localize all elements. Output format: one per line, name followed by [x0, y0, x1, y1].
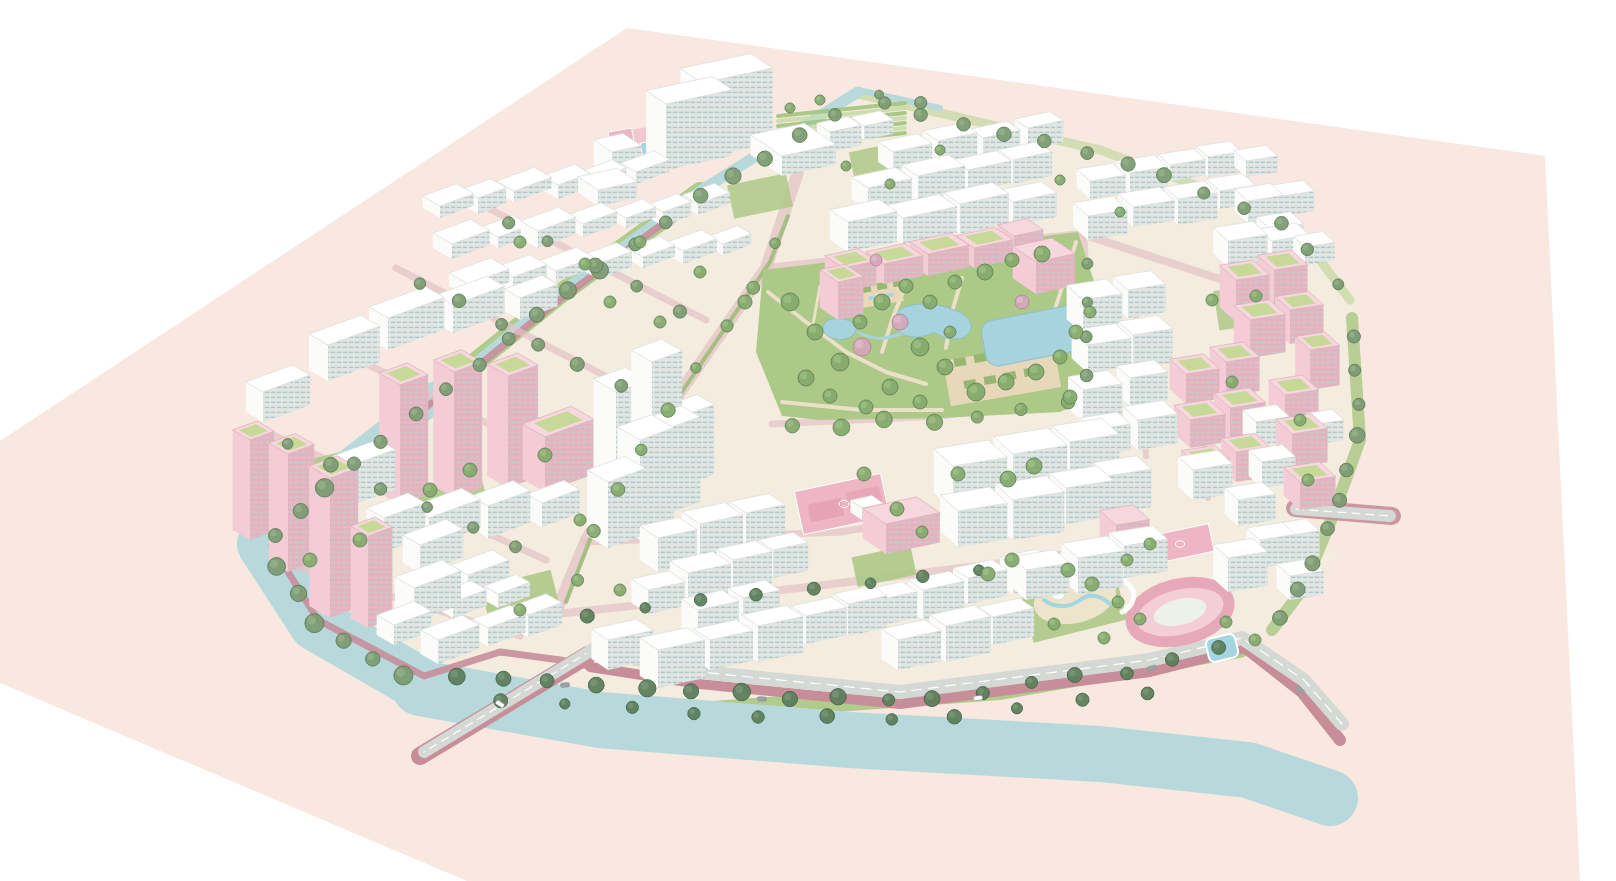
- tree: [876, 411, 893, 428]
- building-white: [1011, 550, 1069, 600]
- tree: [998, 374, 1014, 390]
- tree: [981, 567, 995, 581]
- tree: [853, 338, 871, 356]
- tree: [631, 280, 643, 292]
- tree: [971, 411, 983, 423]
- tree: [290, 585, 306, 601]
- tree: [997, 127, 1011, 141]
- tree: [542, 236, 553, 247]
- tree: [977, 264, 993, 280]
- tree: [503, 217, 515, 229]
- tree: [1206, 294, 1218, 306]
- tree: [1067, 668, 1082, 683]
- tree: [1081, 147, 1094, 160]
- tree: [374, 483, 386, 495]
- tree: [1249, 634, 1261, 646]
- tree: [792, 128, 807, 143]
- tree: [1038, 134, 1052, 148]
- tree: [414, 278, 426, 290]
- tree: [1302, 474, 1314, 486]
- tree: [807, 582, 820, 595]
- tree: [559, 282, 576, 299]
- tree: [293, 503, 308, 518]
- tree: [815, 95, 825, 105]
- tree: [781, 293, 799, 311]
- tree: [913, 395, 927, 409]
- tree: [673, 305, 686, 318]
- tree: [502, 332, 515, 345]
- tree: [640, 603, 650, 613]
- tree: [917, 570, 929, 582]
- tree: [1121, 554, 1133, 566]
- tree: [725, 168, 741, 184]
- tree: [1273, 611, 1288, 626]
- tree: [560, 699, 570, 709]
- tree: [1212, 641, 1226, 655]
- tree: [473, 358, 486, 371]
- tree: [691, 363, 701, 373]
- tree: [688, 708, 700, 720]
- tree: [865, 578, 876, 589]
- tree: [1005, 553, 1019, 567]
- tree: [694, 266, 706, 278]
- tree: [654, 316, 666, 328]
- tree: [916, 526, 928, 538]
- tree: [1025, 676, 1037, 688]
- tree: [859, 400, 873, 414]
- tree: [841, 161, 851, 171]
- tree: [823, 389, 837, 403]
- tree: [1098, 632, 1110, 644]
- tree: [635, 444, 647, 456]
- tree: [634, 236, 646, 248]
- tree: [770, 238, 780, 248]
- building-white: [881, 620, 941, 670]
- tree: [747, 281, 760, 294]
- tree: [661, 403, 675, 417]
- tree: [957, 118, 970, 131]
- tree: [1076, 693, 1089, 706]
- tree: [1028, 364, 1044, 380]
- tree: [1015, 403, 1027, 415]
- tree: [1061, 563, 1075, 577]
- building-pink: [820, 264, 864, 320]
- tree: [532, 338, 545, 351]
- tree: [1144, 538, 1156, 550]
- tree: [268, 558, 286, 576]
- tree: [324, 457, 339, 472]
- tree: [820, 709, 835, 724]
- tree: [733, 683, 750, 700]
- tree: [829, 109, 842, 122]
- tree: [890, 502, 904, 516]
- tree: [833, 419, 850, 436]
- tree: [604, 296, 616, 308]
- tree: [639, 680, 656, 697]
- tree: [303, 553, 317, 567]
- tree: [463, 463, 477, 477]
- tree: [659, 216, 672, 229]
- tree: [830, 689, 846, 705]
- tree: [937, 359, 953, 375]
- tree: [798, 370, 814, 386]
- tree: [1000, 471, 1016, 487]
- tree: [1048, 618, 1060, 630]
- render-canvas: [0, 0, 1616, 881]
- tree: [1055, 175, 1065, 185]
- tree: [394, 666, 413, 685]
- tree: [496, 671, 511, 686]
- tree: [374, 435, 387, 448]
- tree: [1005, 253, 1019, 267]
- tree: [807, 324, 823, 340]
- tree: [448, 668, 465, 685]
- tree: [1333, 279, 1344, 290]
- car: [757, 697, 766, 702]
- tree: [529, 307, 544, 322]
- building-white: [1073, 196, 1127, 240]
- tree: [574, 514, 586, 526]
- tree: [268, 529, 282, 543]
- tree: [422, 502, 433, 513]
- tree: [1290, 582, 1305, 597]
- tree: [757, 151, 772, 166]
- tree: [1301, 243, 1313, 255]
- tree: [282, 438, 293, 449]
- tree: [1220, 616, 1232, 628]
- tree: [423, 483, 437, 497]
- tree: [967, 383, 985, 401]
- building-white: [1117, 360, 1168, 406]
- tree: [1134, 613, 1146, 625]
- building-white: [940, 487, 1007, 547]
- tree: [831, 353, 849, 371]
- tree: [1141, 687, 1154, 700]
- tree: [926, 414, 942, 430]
- tree: [305, 614, 324, 633]
- tree: [1333, 493, 1347, 507]
- tree: [914, 108, 927, 121]
- tree: [468, 522, 479, 533]
- tree: [614, 584, 626, 596]
- tree: [951, 467, 965, 481]
- tree: [782, 691, 797, 706]
- tree: [353, 533, 367, 547]
- masterplan-render: Axonometric urban masterplan render: riv…: [0, 0, 1616, 881]
- building-white: [1225, 482, 1276, 526]
- tree: [874, 294, 890, 310]
- tree: [1015, 295, 1029, 309]
- tree: [721, 320, 733, 332]
- tree: [580, 609, 594, 623]
- tree: [1011, 703, 1022, 714]
- tree: [1305, 556, 1320, 571]
- tree: [1340, 463, 1354, 477]
- tree: [1034, 246, 1050, 262]
- tree: [1157, 168, 1172, 183]
- building-white: [1178, 450, 1232, 500]
- tree: [579, 258, 591, 270]
- building-white: [640, 628, 705, 688]
- tree: [1347, 330, 1360, 343]
- tree: [911, 338, 929, 356]
- tree: [1294, 414, 1306, 426]
- tree: [572, 574, 584, 586]
- tree: [693, 188, 708, 203]
- tree: [336, 633, 351, 648]
- tree: [1165, 653, 1178, 666]
- building-pink: [233, 421, 275, 540]
- tree: [514, 604, 526, 616]
- tree: [1250, 290, 1262, 302]
- tree: [785, 419, 799, 433]
- tree: [1026, 458, 1042, 474]
- tree: [915, 97, 927, 109]
- tree: [1353, 398, 1365, 410]
- tree: [615, 379, 628, 392]
- tree: [366, 652, 380, 666]
- tree: [1112, 596, 1124, 608]
- tree: [440, 383, 453, 396]
- tree: [1121, 157, 1135, 171]
- building-white: [1123, 400, 1177, 450]
- tree: [875, 90, 884, 99]
- tree: [1321, 522, 1335, 536]
- tree: [510, 541, 522, 553]
- building-pink: [433, 350, 482, 498]
- tree: [870, 254, 882, 266]
- tree: [683, 684, 698, 699]
- tree: [540, 674, 554, 688]
- tree: [886, 714, 897, 725]
- tree: [785, 103, 795, 113]
- building-pink: [269, 433, 314, 572]
- tree: [750, 588, 763, 601]
- tree: [882, 379, 898, 395]
- tree: [944, 326, 956, 338]
- building-white: [1213, 538, 1267, 592]
- tree: [1085, 577, 1099, 591]
- tree: [948, 275, 962, 289]
- tree: [1080, 369, 1093, 382]
- tree: [1349, 364, 1361, 376]
- masterplan-svg: [0, 0, 1616, 881]
- tree: [694, 594, 707, 607]
- tree: [626, 701, 638, 713]
- tree: [923, 295, 937, 309]
- tree: [409, 407, 423, 421]
- tree: [452, 294, 466, 308]
- tree: [883, 694, 895, 706]
- car: [560, 682, 569, 687]
- tree: [1238, 202, 1251, 215]
- tree: [315, 479, 333, 497]
- tree: [1121, 667, 1134, 680]
- tree: [935, 145, 945, 155]
- masterplan-page: Axonometric urban masterplan render: riv…: [0, 0, 1616, 881]
- tree: [1082, 258, 1093, 269]
- tree: [570, 357, 584, 371]
- tree: [588, 677, 604, 693]
- tree: [853, 315, 867, 329]
- tree: [1115, 207, 1125, 217]
- tree: [347, 457, 360, 470]
- tree: [611, 483, 625, 497]
- tree: [1063, 390, 1077, 404]
- tree: [892, 314, 908, 330]
- tree: [899, 279, 913, 293]
- tree: [857, 467, 871, 481]
- tree: [1053, 350, 1067, 364]
- tree: [885, 179, 895, 189]
- tree: [1226, 376, 1238, 388]
- tree: [496, 318, 508, 330]
- tree: [1084, 306, 1096, 318]
- tree: [538, 448, 552, 462]
- car: [973, 695, 982, 700]
- tree: [947, 710, 961, 724]
- tree: [738, 295, 752, 309]
- tree: [587, 524, 600, 537]
- tree: [1349, 428, 1365, 444]
- tree: [752, 711, 764, 723]
- tree: [1275, 216, 1289, 230]
- tree: [924, 691, 940, 707]
- park-pond-small: [823, 319, 856, 340]
- tree: [1198, 187, 1210, 199]
- tree: [514, 236, 526, 248]
- tree: [1069, 325, 1083, 339]
